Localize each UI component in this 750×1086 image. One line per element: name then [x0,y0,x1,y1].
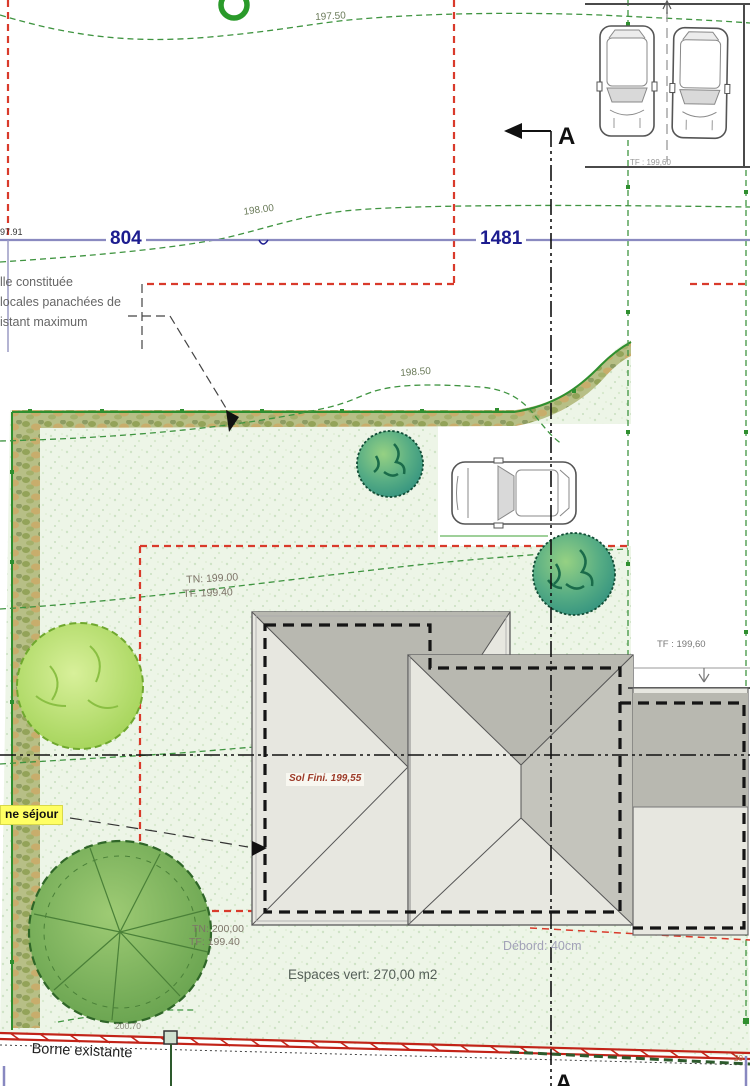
tf-level-garage: TF : 199,60 [657,640,706,650]
parking-area [585,1,750,167]
contour-label-200-70: 200.70 [115,1022,141,1031]
large-tree-icon [29,841,211,1023]
hedge-note-line3: istant maximum [0,316,88,329]
contour-label-197-50: 197.50 [315,11,346,23]
edge-partial-label: 20 [734,1055,743,1063]
debord-label: Débord: 40cm [503,940,582,953]
round-tree-icon [533,533,615,615]
north-tick-icon [663,1,671,14]
parcel-number-1481: 1481 [476,229,526,249]
tf-level-mid: TF. 199.40 [183,587,233,600]
ornamental-tree-icon [17,623,143,749]
site-plan: lle constituée locales panachées de ista… [0,0,750,1086]
corner-elevation: 97.91 [0,228,23,237]
car-top-view-icon [669,27,731,138]
boundary-marker-icon [164,1031,177,1044]
car-top-view-icon [597,26,657,136]
section-cut-arrow-icon [504,123,522,139]
sol-fini-level: Sol Fini. 199,55 [286,773,364,786]
hedge-note-line1: lle constituée [0,276,73,289]
hedge-note-line2: locales panachées de [0,296,121,309]
section-letter-bottom: A [555,1071,572,1086]
contour-label-198-50: 198.50 [400,367,431,380]
tf-level-bottom: TF: 199.40 [189,937,240,948]
parcel-number-804: 804 [106,229,146,249]
level-mark-icon [699,668,709,682]
tn-level-bottom: TN: 200,00 [192,924,244,935]
car-top-view-icon [452,458,576,528]
sejour-label: ne séjour [0,805,63,825]
espaces-vert-label: Espaces vert: 270,00 m2 [288,968,437,982]
garage [628,668,750,935]
section-letter-top: A [558,124,575,149]
tree-ring-icon [221,0,247,18]
round-tree-icon [357,431,423,497]
tf-level-parking: TF : 199,60 [630,159,671,167]
